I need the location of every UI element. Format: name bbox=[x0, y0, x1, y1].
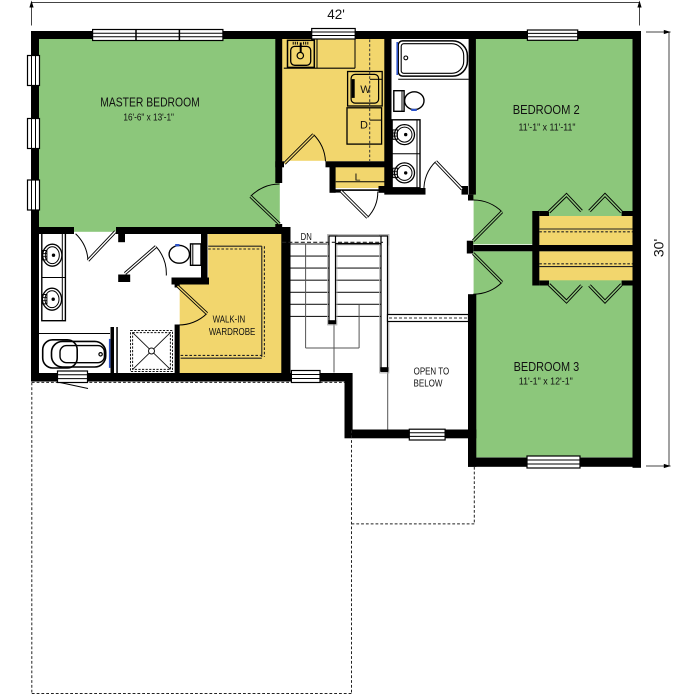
svg-text:42': 42' bbox=[327, 7, 345, 22]
svg-text:MASTER BEDROOM: MASTER BEDROOM bbox=[100, 95, 200, 110]
svg-text:BEDROOM 3: BEDROOM 3 bbox=[514, 359, 580, 374]
svg-text:L: L bbox=[355, 172, 361, 184]
svg-text:OPEN TO: OPEN TO bbox=[414, 367, 450, 378]
svg-text:WALK-IN: WALK-IN bbox=[213, 314, 246, 325]
svg-text:16'-6" x 13'-1": 16'-6" x 13'-1" bbox=[123, 112, 174, 123]
svg-text:30': 30' bbox=[651, 239, 667, 257]
svg-text:11'-1" x 12'-1": 11'-1" x 12'-1" bbox=[519, 376, 573, 387]
svg-text:D: D bbox=[360, 120, 368, 132]
svg-text:11'-1" x 11'-11": 11'-1" x 11'-11" bbox=[519, 122, 576, 133]
svg-text:BELOW: BELOW bbox=[414, 379, 443, 390]
svg-text:BEDROOM 2: BEDROOM 2 bbox=[513, 102, 580, 117]
svg-text:DN: DN bbox=[301, 232, 312, 243]
svg-text:WARDROBE: WARDROBE bbox=[209, 327, 256, 338]
